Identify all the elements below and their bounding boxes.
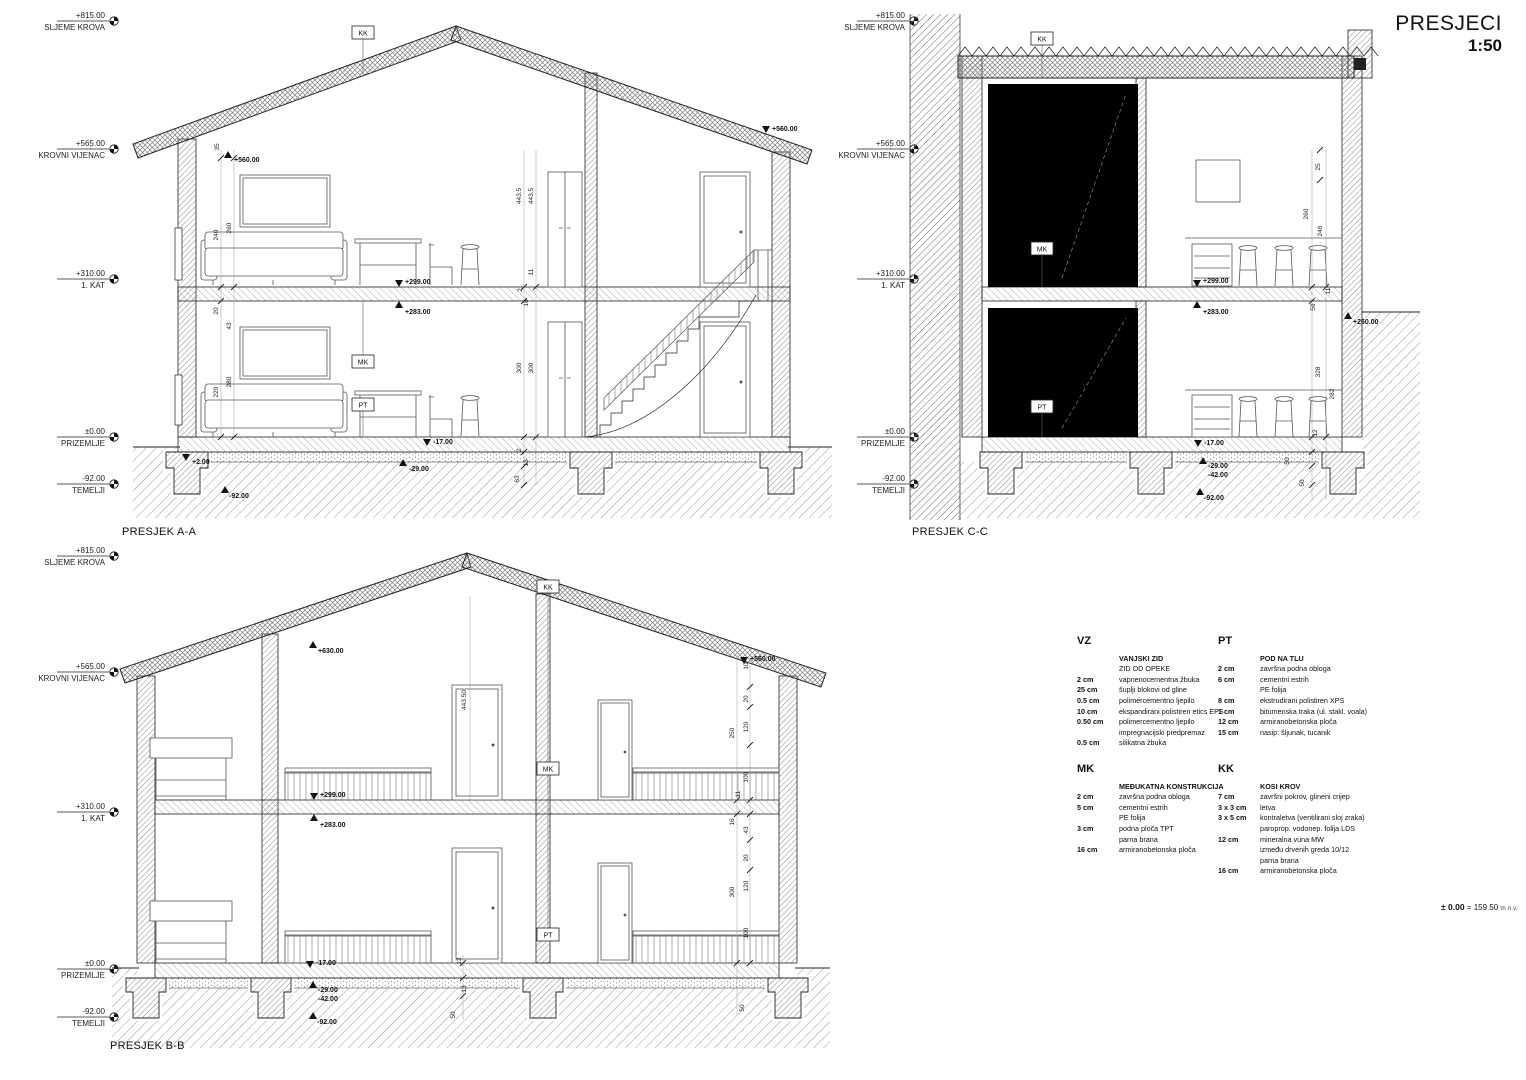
legend-pt: PT POD NA TLU 2 cmzavršna podna obloga6 …	[1218, 636, 1394, 738]
legend-row: 12 cmmineralna vuna MW	[1218, 835, 1394, 846]
svg-text:+299.00: +299.00	[1203, 278, 1229, 285]
tag-kk-label: KK	[543, 585, 553, 592]
svg-text:120: 120	[743, 880, 750, 891]
svg-text:KROVNI VIJENAC: KROVNI VIJENAC	[38, 674, 105, 683]
svg-text:-29.00: -29.00	[1208, 463, 1228, 470]
section-aa: +815.00 SLJEME KROVA +565.00 KROVNI VIJE…	[38, 11, 832, 518]
gravel-layer	[196, 452, 772, 462]
svg-text:-92.00: -92.00	[317, 1019, 337, 1026]
level-value: +565.00	[76, 139, 106, 148]
svg-text:300: 300	[729, 886, 736, 897]
svg-text:1. KAT: 1. KAT	[881, 281, 905, 290]
svg-text:35: 35	[214, 143, 221, 151]
exterior-wall	[962, 56, 982, 437]
sheet-title-block: PRESJECI 1:50	[1395, 12, 1502, 56]
svg-text:+815.00: +815.00	[876, 11, 906, 20]
level-value: +815.00	[76, 11, 106, 20]
ground-hatch	[112, 988, 830, 1048]
svg-text:328: 328	[1315, 366, 1322, 377]
legend-row: 3 x 3 cmletva	[1218, 803, 1394, 814]
legend-row: 0.5 cmsilikatna žbuka	[1077, 738, 1253, 749]
ground-slab	[982, 437, 1342, 452]
svg-text:2: 2	[516, 448, 523, 452]
svg-text:+283.00: +283.00	[1203, 309, 1229, 316]
drawing-sheet: +815.00 SLJEME KROVA +565.00 KROVNI VIJE…	[0, 0, 1526, 1080]
svg-text:100: 100	[743, 771, 750, 782]
parapet	[1348, 30, 1372, 78]
datum-note-unit: m n.v.	[1500, 905, 1517, 912]
roof-right	[462, 553, 826, 687]
furniture-upper	[201, 172, 750, 287]
roof-flat	[958, 56, 1354, 78]
legend-row: 7 cmzavršni pokrov, glineni crijep	[1218, 792, 1394, 803]
svg-text:-29.00: -29.00	[318, 987, 338, 994]
floor-slab	[155, 800, 779, 814]
floor-slab	[178, 287, 790, 301]
level-value: -92.00	[82, 474, 105, 483]
legend-row: parna brana	[1218, 856, 1394, 867]
svg-text:246: 246	[1317, 225, 1324, 236]
svg-text:100: 100	[743, 927, 750, 938]
tag-kk-label: KK	[1037, 37, 1047, 44]
svg-text:260: 260	[226, 222, 233, 233]
section-aa-label: PRESJEK A-A	[122, 526, 196, 538]
legend-title-row: POD NA TLU	[1218, 654, 1394, 665]
furniture-ground	[150, 848, 779, 963]
level-name: 1. KAT	[81, 281, 105, 290]
roof-tiles	[958, 47, 1378, 56]
svg-text:PRIZEMLJE: PRIZEMLJE	[861, 439, 905, 448]
ground-slab	[155, 963, 779, 978]
svg-text:12: 12	[456, 957, 463, 965]
svg-text:50: 50	[739, 1004, 746, 1012]
svg-text:+560.00: +560.00	[750, 656, 776, 663]
level-name: SLJEME KROVA	[44, 23, 105, 32]
svg-text:-42.00: -42.00	[318, 996, 338, 1003]
svg-text:-92.00: -92.00	[82, 1007, 105, 1016]
sheet-title: PRESJECI	[1395, 12, 1502, 36]
svg-text:50: 50	[450, 1011, 457, 1019]
legend-row: 8 cmekstrudirani polistiren XPS	[1218, 696, 1394, 707]
svg-text:+299.00: +299.00	[320, 792, 346, 799]
exterior-wall	[1342, 56, 1362, 437]
datum-note-value: = 159.50	[1467, 903, 1498, 912]
interior-wall	[262, 634, 278, 963]
svg-text:300: 300	[528, 362, 535, 373]
svg-text:13: 13	[523, 459, 530, 467]
kitchen-upper	[1185, 160, 1342, 286]
section-cc: +815.00 SLJEME KROVA +565.00 KROVNI VIJE…	[838, 11, 1420, 520]
svg-text:12: 12	[1312, 429, 1319, 437]
legend-title-row: KOSI KROV	[1218, 782, 1394, 793]
svg-text:-29.00: -29.00	[409, 466, 429, 473]
legend-pt-rows: 2 cmzavršna podna obloga6 cmcementni est…	[1218, 664, 1394, 738]
svg-text:260: 260	[1303, 208, 1310, 219]
legend-row: 2 cmzavršna podna obloga	[1218, 664, 1394, 675]
glass-doors-upper	[988, 84, 1138, 287]
svg-text:-17.00: -17.00	[1204, 440, 1224, 447]
exterior-wall	[779, 676, 797, 963]
svg-text:2: 2	[517, 288, 524, 292]
svg-text:KROVNI VIJENAC: KROVNI VIJENAC	[838, 151, 905, 160]
legend-row: 6 cmcementni estrih	[1218, 675, 1394, 686]
tag-mk-label: MK	[543, 767, 554, 774]
svg-text:63: 63	[514, 475, 521, 483]
tag-mk-label: MK	[358, 360, 369, 367]
svg-text:220: 220	[213, 386, 220, 397]
legend-kk-rows: 7 cmzavršni pokrov, glineni crijep3 x 3 …	[1218, 792, 1394, 877]
svg-text:300: 300	[516, 362, 523, 373]
svg-text:TEMELJI: TEMELJI	[872, 486, 905, 495]
beam-cut	[1354, 58, 1366, 70]
svg-text:-17.00: -17.00	[316, 960, 336, 967]
svg-text:50: 50	[1299, 479, 1306, 487]
bb-level-labels: +815.00 SLJEME KROVA +565.00 KROVNI VIJE…	[38, 546, 118, 1028]
legend-row: PE folija	[1218, 685, 1394, 696]
svg-text:+815.00: +815.00	[76, 546, 106, 555]
adjacent-hatch	[910, 14, 960, 520]
svg-text:1. KAT: 1. KAT	[81, 814, 105, 823]
window	[175, 375, 182, 425]
svg-text:-92.00: -92.00	[1204, 495, 1224, 502]
legend-row: 3 x 5 cmkontraletva (ventilirani sloj zr…	[1218, 813, 1394, 824]
svg-text:+630.00: +630.00	[318, 648, 344, 655]
svg-text:+565.00: +565.00	[76, 662, 106, 671]
section-bb: +815.00 SLJEME KROVA +565.00 KROVNI VIJE…	[38, 546, 830, 1048]
tag-kk-label: KK	[358, 31, 368, 38]
legend-kk: KK KOSI KROV 7 cmzavršni pokrov, glineni…	[1218, 764, 1394, 877]
svg-text:282: 282	[1329, 388, 1336, 399]
svg-text:+2.00: +2.00	[192, 459, 210, 466]
level-name: PRIZEMLJE	[61, 439, 105, 448]
roof-right	[451, 26, 812, 164]
svg-text:-92.00: -92.00	[882, 474, 905, 483]
datum-note-level: ± 0.00	[1441, 902, 1465, 912]
svg-text:13: 13	[461, 985, 468, 993]
svg-text:-42.00: -42.00	[1208, 472, 1228, 479]
legend-row: 15 cmnasip: šljunak, tucanik	[1218, 728, 1394, 739]
svg-text:+560.00: +560.00	[234, 157, 260, 164]
svg-text:+283.00: +283.00	[405, 309, 431, 316]
ground-slab	[178, 437, 790, 452]
svg-text:59: 59	[1310, 303, 1317, 311]
legend-row: 12 cmarmiranobetonska ploča	[1218, 717, 1394, 728]
svg-text:±0.00: ±0.00	[85, 959, 106, 968]
svg-text:+299.00: +299.00	[405, 279, 431, 286]
legend-row: 16 cmarmiranobetonska ploča	[1218, 866, 1394, 877]
tag-mk-label: MK	[1037, 247, 1048, 254]
glass-doors-ground	[988, 308, 1138, 437]
svg-text:SLJEME KROVA: SLJEME KROVA	[844, 23, 905, 32]
svg-text:43: 43	[743, 826, 750, 834]
svg-text:PRIZEMLJE: PRIZEMLJE	[61, 971, 105, 980]
ground-hatch	[133, 462, 832, 518]
svg-text:TEMELJI: TEMELJI	[72, 1019, 105, 1028]
svg-text:11: 11	[528, 268, 535, 275]
svg-text:-17.00: -17.00	[433, 439, 453, 446]
aa-level-labels: +815.00 SLJEME KROVA +565.00 KROVNI VIJE…	[38, 11, 118, 495]
roof-left	[133, 26, 461, 158]
section-cc-label: PRESJEK C-C	[912, 526, 988, 538]
tag-pt-label: PT	[544, 933, 554, 940]
svg-text:20: 20	[743, 854, 750, 862]
svg-text:240: 240	[213, 229, 220, 240]
interior-wall	[585, 73, 597, 437]
svg-text:120: 120	[743, 721, 750, 732]
tag-pt-label: PT	[359, 403, 369, 410]
level-value: ±0.00	[85, 427, 106, 436]
svg-text:20: 20	[213, 307, 220, 315]
level-value: +310.00	[76, 269, 106, 278]
tag-pt-label: PT	[1038, 405, 1048, 412]
svg-text:16: 16	[729, 818, 736, 826]
legend-row: između drvenih greda 10/12	[1218, 845, 1394, 856]
svg-text:+260.00: +260.00	[1353, 319, 1379, 326]
svg-text:+560.00: +560.00	[772, 126, 798, 133]
window	[175, 228, 182, 280]
sheet-scale: 1:50	[1395, 36, 1502, 56]
svg-text:±0.00: ±0.00	[885, 427, 906, 436]
floor-slab	[982, 287, 1342, 301]
roof-left	[120, 553, 471, 683]
svg-text:280: 280	[226, 376, 233, 387]
svg-text:-92.00: -92.00	[229, 493, 249, 500]
legend-kk-code: KK	[1218, 764, 1394, 775]
svg-text:11: 11	[735, 790, 742, 797]
legend-row: paroprop. vodonep. folija LDS	[1218, 824, 1394, 835]
cc-level-labels: +815.00 SLJEME KROVA +565.00 KROVNI VIJE…	[838, 11, 918, 495]
svg-text:43: 43	[226, 322, 233, 330]
svg-text:25: 25	[1315, 163, 1322, 171]
section-bb-label: PRESJEK B-B	[110, 1040, 185, 1052]
level-name: TEMELJI	[72, 486, 105, 495]
level-name: KROVNI VIJENAC	[38, 151, 105, 160]
legend-pt-code: PT	[1218, 636, 1394, 647]
svg-text:11: 11	[1325, 287, 1332, 294]
svg-text:443.50: 443.50	[461, 690, 468, 710]
datum-note: ± 0.00 = 159.50 m n.v.	[1441, 902, 1518, 912]
svg-text:443.5: 443.5	[516, 187, 523, 204]
svg-text:50: 50	[1284, 457, 1291, 465]
sections-drawing: +815.00 SLJEME KROVA +565.00 KROVNI VIJE…	[0, 0, 1526, 1080]
legend-row: 1 cmbitumenska traka (ul. stakl. voala)	[1218, 707, 1394, 718]
svg-text:SLJEME KROVA: SLJEME KROVA	[44, 558, 105, 567]
svg-text:20: 20	[743, 695, 750, 703]
svg-text:250: 250	[729, 727, 736, 738]
svg-text:+310.00: +310.00	[876, 269, 906, 278]
svg-text:16: 16	[523, 299, 530, 307]
svg-text:+283.00: +283.00	[320, 822, 346, 829]
svg-text:+565.00: +565.00	[876, 139, 906, 148]
svg-text:+310.00: +310.00	[76, 802, 106, 811]
svg-text:443.5: 443.5	[528, 187, 535, 204]
